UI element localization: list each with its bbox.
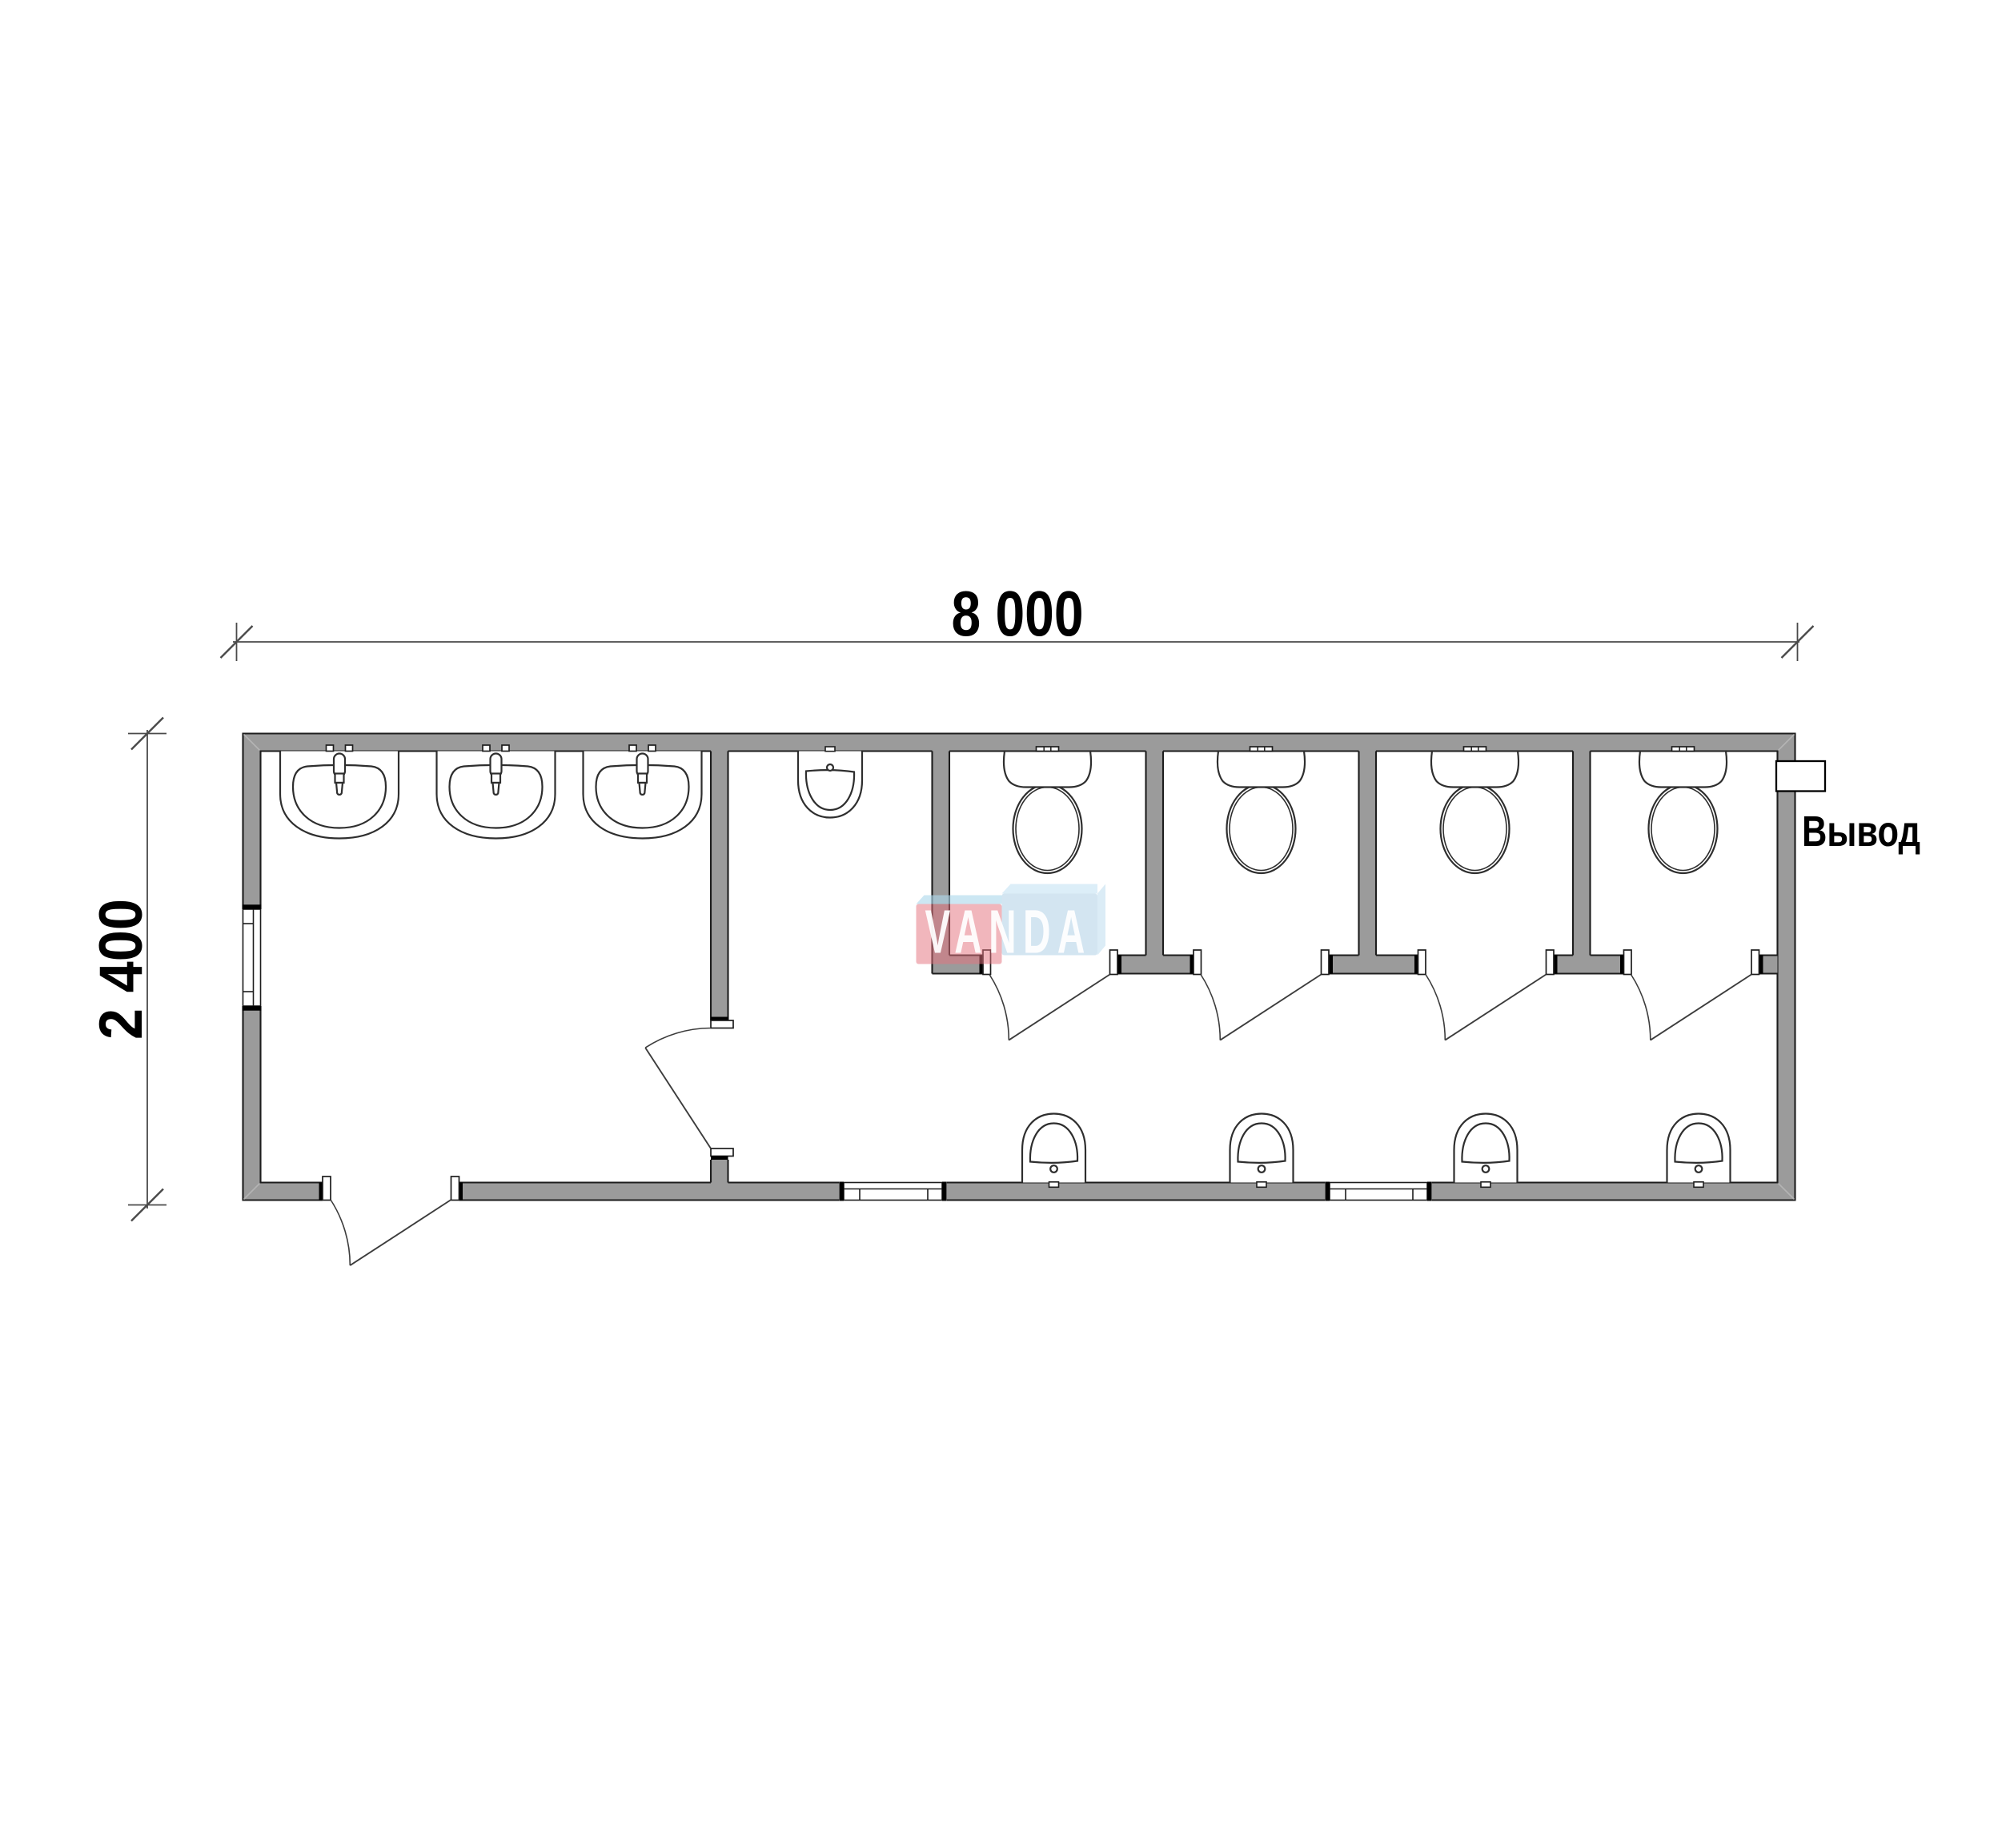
svg-text:8 000: 8 000 <box>952 578 1084 649</box>
svg-text:Вывод: Вывод <box>1802 808 1920 856</box>
svg-text:2 400: 2 400 <box>87 899 155 1040</box>
svg-text:VANDA: VANDA <box>925 897 1092 967</box>
